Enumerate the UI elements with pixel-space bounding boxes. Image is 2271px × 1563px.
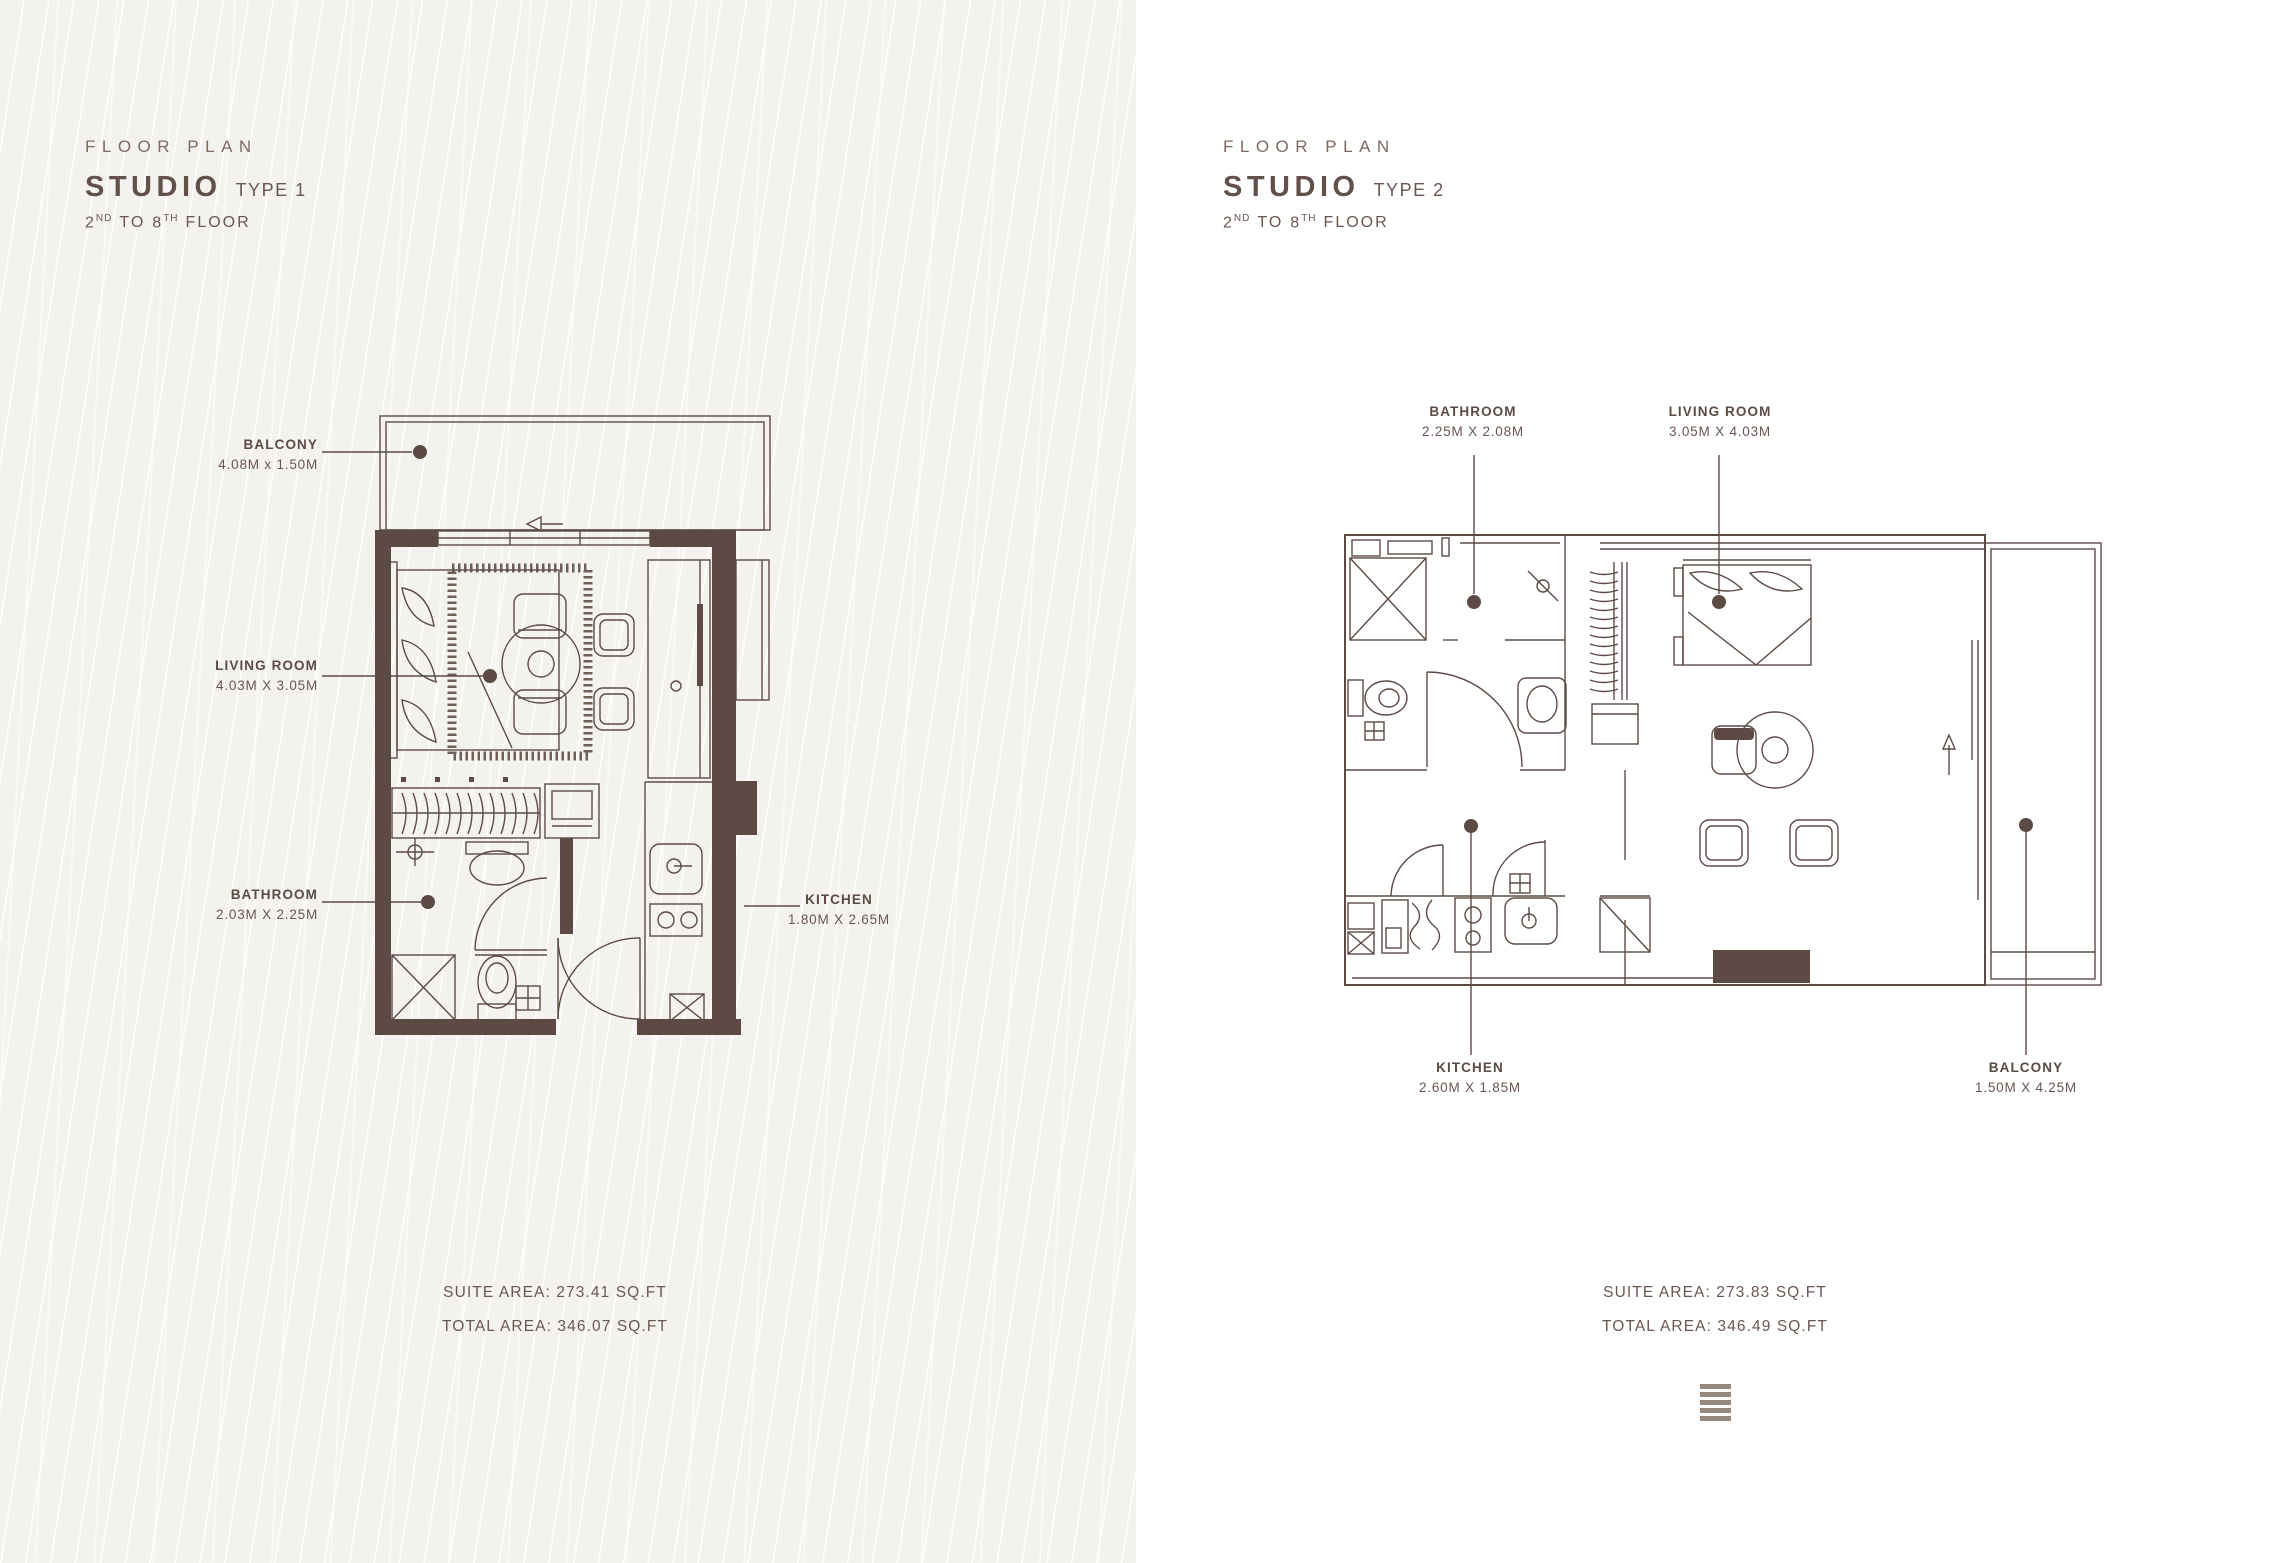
bed-type2 — [1674, 560, 1811, 665]
label-bathroom-type2: BATHROOM 2.25M X 2.08M — [1383, 405, 1563, 438]
type2-suite-area: SUITE AREA: 273.83 SQ.FT — [1535, 1284, 1895, 1302]
label-living-room-type2: LIVING ROOM 3.05M X 4.03M — [1630, 405, 1810, 438]
label-living-room-type1: LIVING ROOM 4.03M X 3.05M — [168, 659, 318, 692]
label-bathroom-type1: BATHROOM 2.03M X 2.25M — [168, 888, 318, 921]
tv-console-type2 — [1713, 950, 1810, 983]
type1-title: STUDIO TYPE 1 — [85, 171, 307, 204]
type2-title-studio: STUDIO — [1223, 171, 1360, 204]
type2-floor-range: 2NDTO8THFLOOR — [1223, 213, 1445, 232]
type2-title: STUDIO TYPE 2 — [1223, 171, 1445, 204]
type2-title-type: TYPE 2 — [1374, 180, 1445, 201]
kitchen-fixtures-type1 — [645, 782, 712, 1021]
kitchen-marker-dot-type2 — [1464, 819, 1478, 833]
type2-floor-plan-eyebrow: FLOOR PLAN — [1223, 137, 1445, 157]
type2-total-area: TOTAL AREA: 346.49 SQ.FT — [1535, 1318, 1895, 1336]
dining-table-type2 — [1700, 712, 1838, 866]
wardrobe-type1 — [392, 777, 540, 838]
wardrobe-type2 — [1590, 562, 1638, 744]
type1-floor-plan-eyebrow: FLOOR PLAN — [85, 137, 307, 157]
living-room-marker-dot-type2 — [1712, 595, 1726, 609]
entry-arrow-icon — [527, 517, 563, 531]
type2-header: FLOOR PLAN STUDIO TYPE 2 2NDTO8THFLOOR — [1223, 137, 1445, 232]
type2-areas: SUITE AREA: 273.83 SQ.FT TOTAL AREA: 346… — [1535, 1284, 1895, 1336]
bathroom-fixtures-type1 — [392, 838, 547, 1021]
label-balcony-type1: BALCONY 4.08M x 1.50M — [176, 438, 318, 471]
label-balcony-type2: BALCONY 1.50M X 4.25M — [1936, 1061, 2116, 1094]
bathroom-marker-dot-type2 — [1467, 595, 1481, 609]
floor-plan-drawings — [0, 0, 2271, 1563]
direction-arrow-icon — [1943, 735, 1955, 775]
balcony-marker-dot-type2 — [2019, 818, 2033, 832]
type1-title-studio: STUDIO — [85, 171, 222, 204]
type1-floor-range: 2NDTO8THFLOOR — [85, 213, 307, 232]
type1-total-area: TOTAL AREA: 346.07 SQ.FT — [375, 1318, 735, 1336]
type1-title-type: TYPE 1 — [236, 180, 307, 201]
dining-table-type1 — [502, 594, 634, 734]
living-room-marker-dot — [483, 669, 497, 683]
floor-plan-type1-drawing — [322, 416, 800, 1035]
balcony-marker-dot — [413, 445, 427, 459]
bathroom-marker-dot — [421, 895, 435, 909]
toilet-type2 — [1348, 680, 1407, 740]
type1-areas: SUITE AREA: 273.41 SQ.FT TOTAL AREA: 346… — [375, 1284, 735, 1336]
bed-type1 — [384, 562, 559, 758]
shower-type2 — [1350, 558, 1558, 640]
type1-suite-area: SUITE AREA: 273.41 SQ.FT — [375, 1284, 735, 1302]
floor-plan-type2-drawing — [1345, 455, 2101, 1055]
type1-header: FLOOR PLAN STUDIO TYPE 1 2NDTO8THFLOOR — [85, 137, 307, 232]
label-kitchen-type1: KITCHEN 1.80M X 2.65M — [780, 893, 898, 926]
kitchen-fixtures-type2 — [1345, 874, 1650, 954]
label-kitchen-type2: KITCHEN 2.60M X 1.85M — [1380, 1061, 1560, 1094]
brand-lines-logo-icon — [1700, 1384, 1731, 1421]
